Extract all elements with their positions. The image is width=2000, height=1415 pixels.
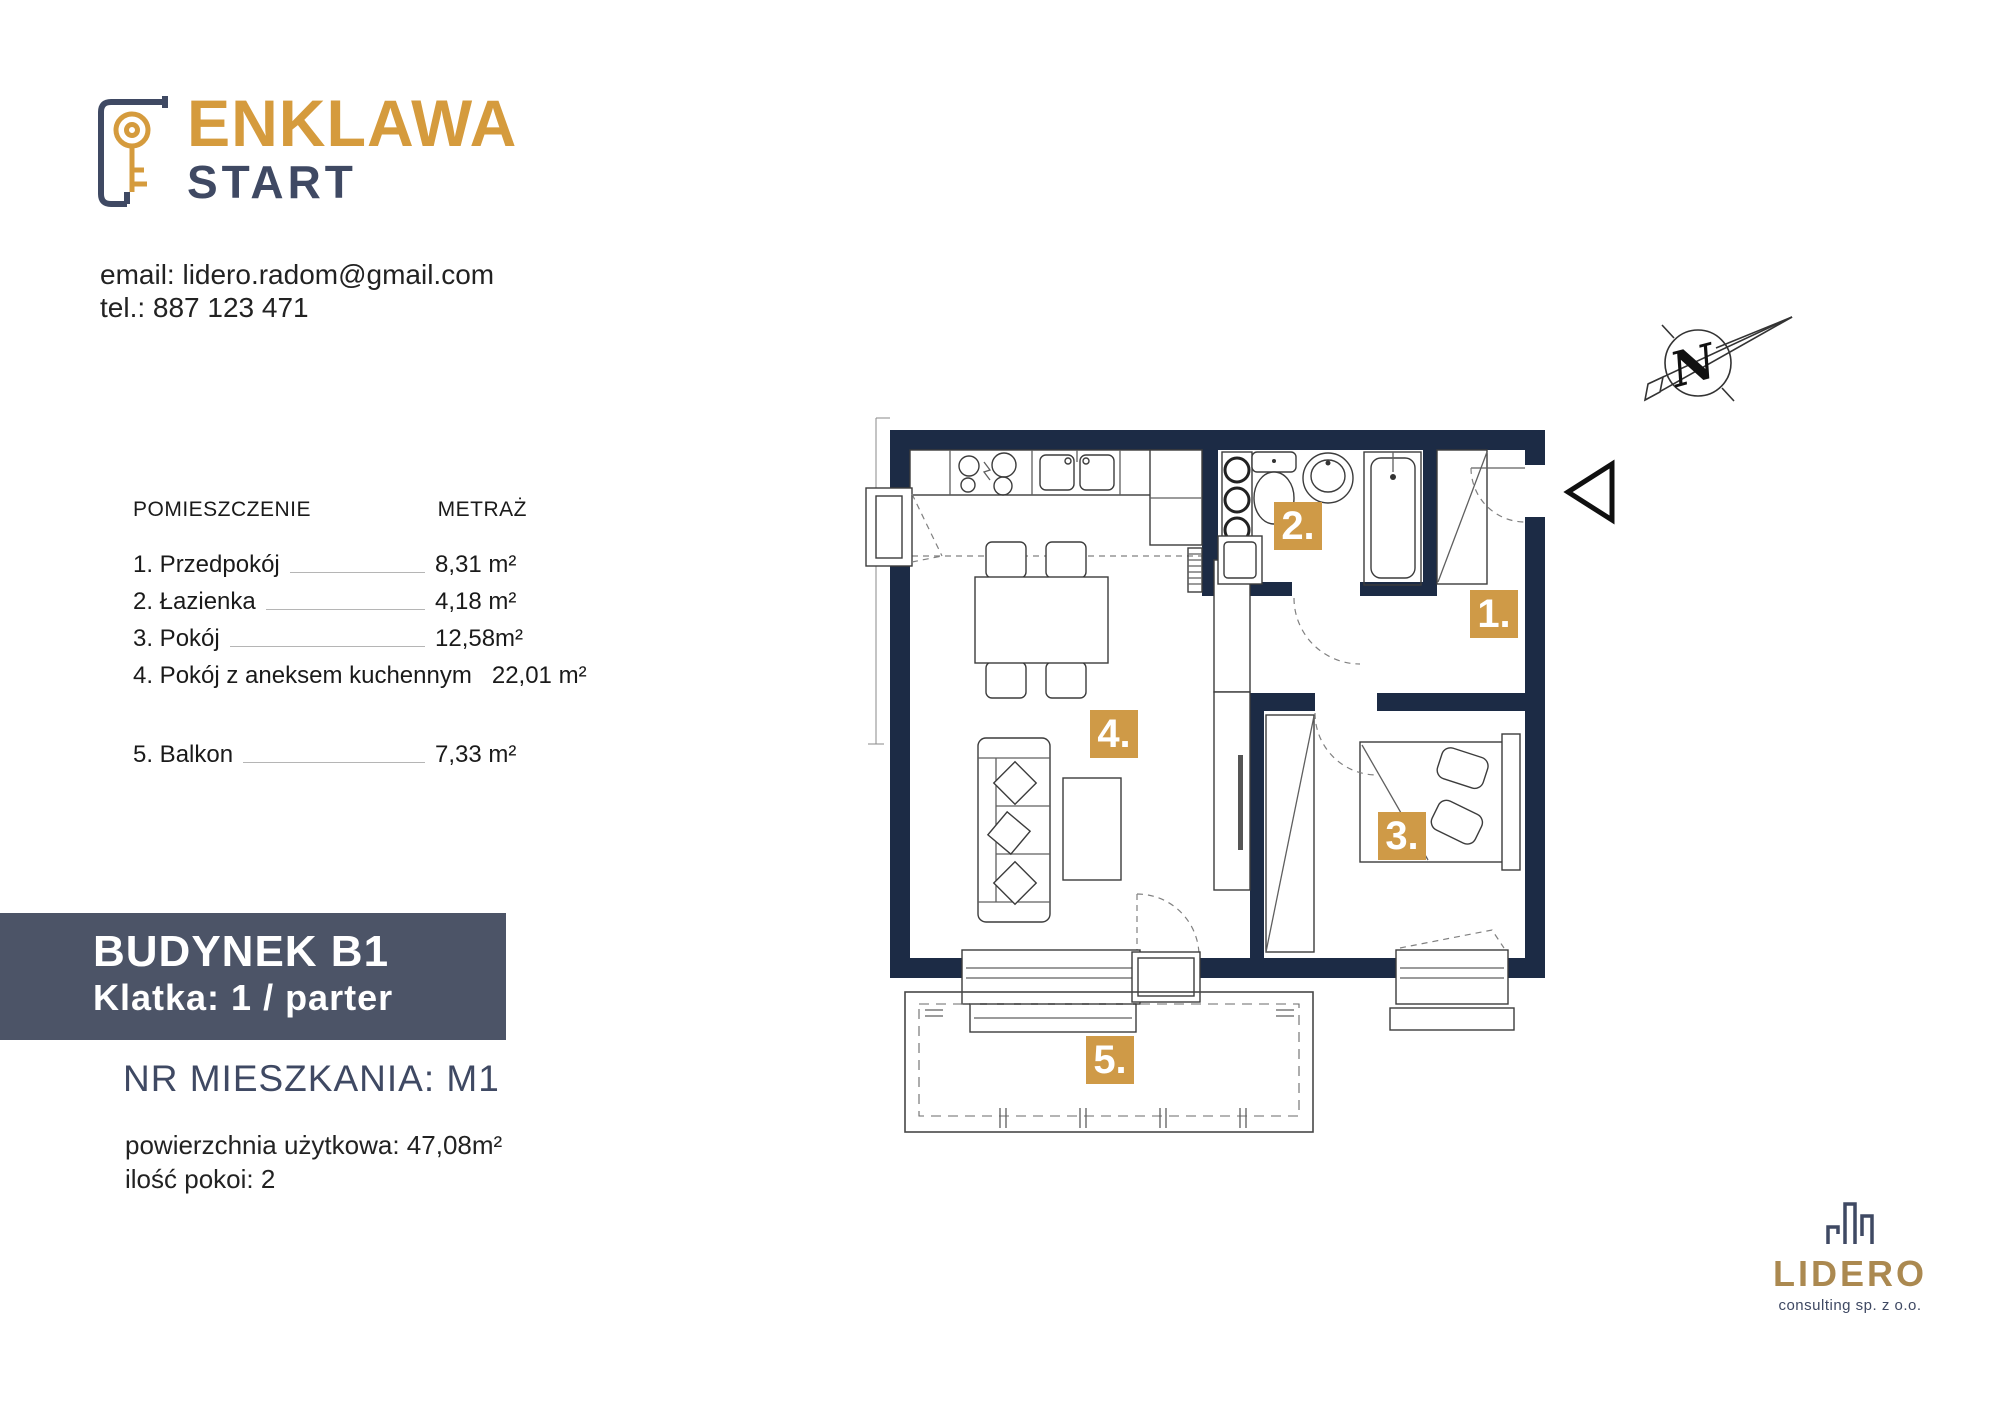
apartment-area: powierzchnia użytkowa: 47,08m² bbox=[125, 1128, 502, 1162]
row-label: 4. Pokój z aneksem kuchennym bbox=[133, 662, 472, 690]
north-compass-icon: N bbox=[1645, 317, 1792, 401]
lidero-name: LIDERO bbox=[1738, 1253, 1962, 1295]
leader-line bbox=[230, 646, 425, 647]
contact-block: email: lidero.radom@gmail.com tel.: 887 … bbox=[100, 258, 494, 324]
table-row: 2. Łazienka 4,18 m² bbox=[133, 579, 527, 616]
leader-line bbox=[266, 609, 425, 610]
floor-plan: 1. 2. 3. 4. 5. N bbox=[700, 240, 1900, 1150]
key-door-icon bbox=[95, 88, 179, 214]
table-row: 5. Balkon 7,33 m² bbox=[133, 732, 527, 769]
header-room: POMIESZCZENIE bbox=[133, 498, 311, 522]
lidero-logo: LIDERO consulting sp. z o.o. bbox=[1738, 1200, 1962, 1314]
apartment-rooms: ilość pokoi: 2 bbox=[125, 1162, 502, 1196]
room-label-bedroom: 3. bbox=[1385, 814, 1418, 858]
table-row: 4. Pokój z aneksem kuchennym 22,01 m² bbox=[133, 653, 527, 690]
flyer-page: ENKLAWA START email: lidero.radom@gmail.… bbox=[0, 0, 2000, 1415]
row-value: 22,01 m² bbox=[492, 662, 584, 690]
brand-name-top: ENKLAWA bbox=[187, 88, 517, 158]
balcony-door-window bbox=[1132, 952, 1200, 1002]
room-label-bath: 2. bbox=[1281, 504, 1314, 548]
leader-line bbox=[290, 572, 425, 573]
balcony-door-arc bbox=[1137, 894, 1199, 956]
shower-icon bbox=[1364, 452, 1421, 585]
sofa bbox=[978, 738, 1050, 922]
building-banner: BUDYNEK B1 Klatka: 1 / parter bbox=[0, 913, 506, 1040]
contact-phone: tel.: 887 123 471 bbox=[100, 291, 494, 324]
exterior-contour-lines bbox=[868, 418, 890, 744]
contact-email: email: lidero.radom@gmail.com bbox=[100, 258, 494, 291]
basin-icon bbox=[1303, 453, 1353, 503]
lidero-subtitle: consulting sp. z o.o. bbox=[1738, 1297, 1962, 1314]
room-label-balcony: 5. bbox=[1093, 1038, 1126, 1082]
row-value: 4,18 m² bbox=[435, 588, 527, 616]
bathroom-door-arc bbox=[1294, 598, 1360, 664]
buildings-icon bbox=[1818, 1200, 1882, 1246]
brand-name-bottom: START bbox=[187, 158, 524, 206]
building-staircase: Klatka: 1 / parter bbox=[93, 977, 506, 1019]
tv-cabinet bbox=[1214, 560, 1250, 890]
room-label-living: 4. bbox=[1097, 712, 1130, 756]
coffee-table bbox=[1063, 778, 1121, 880]
living-window bbox=[962, 950, 1140, 1032]
row-label: 1. Przedpokój bbox=[133, 551, 280, 579]
building-name: BUDYNEK B1 bbox=[93, 927, 506, 977]
room-table-header: POMIESZCZENIE METRAŻ bbox=[133, 498, 527, 522]
apartment-number: NR MIESZKANIA: M1 bbox=[123, 1058, 500, 1100]
bedroom-window bbox=[1390, 930, 1514, 1030]
washing-machine-icon bbox=[1218, 536, 1262, 584]
leader-line bbox=[243, 762, 425, 763]
table-row: 1. Przedpokój 8,31 m² bbox=[133, 542, 527, 579]
tv-icon bbox=[1238, 755, 1243, 850]
row-value: 8,31 m² bbox=[435, 551, 527, 579]
table-row: 3. Pokój 12,58m² bbox=[133, 616, 527, 653]
brand-logo: ENKLAWA START bbox=[95, 88, 524, 214]
washer-column-icon bbox=[1222, 452, 1252, 548]
room-table: POMIESZCZENIE METRAŻ 1. Przedpokój 8,31 … bbox=[133, 498, 527, 769]
apartment-meta: powierzchnia użytkowa: 47,08m² ilość pok… bbox=[125, 1128, 502, 1196]
compass-north-letter: N bbox=[1663, 333, 1724, 400]
row-label: 2. Łazienka bbox=[133, 588, 256, 616]
radiator-icon bbox=[1188, 548, 1202, 592]
row-label: 5. Balkon bbox=[133, 741, 233, 769]
brand-text: ENKLAWA START bbox=[187, 88, 524, 206]
row-value: 12,58m² bbox=[435, 625, 527, 653]
row-label: 3. Pokój bbox=[133, 625, 220, 653]
row-value: 7,33 m² bbox=[435, 741, 527, 769]
entrance-arrow-icon bbox=[1568, 464, 1612, 520]
dining-table bbox=[975, 542, 1108, 698]
left-window bbox=[866, 488, 942, 566]
hall-wardrobe bbox=[1437, 450, 1487, 584]
room-label-hall: 1. bbox=[1477, 592, 1510, 636]
header-area: METRAŻ bbox=[438, 498, 527, 522]
